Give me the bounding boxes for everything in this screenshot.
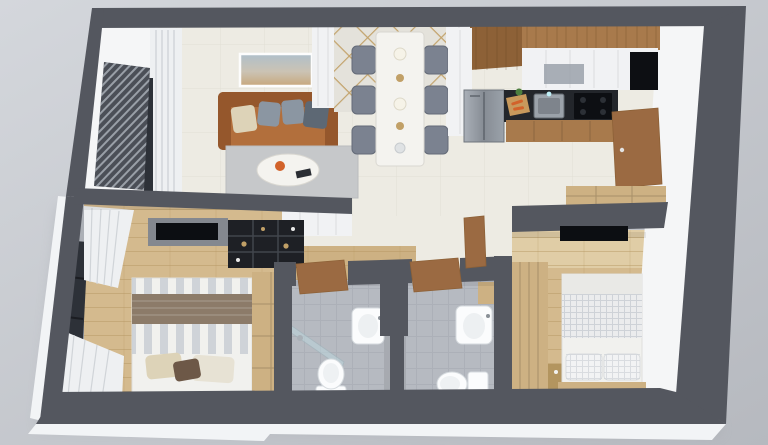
bedroom-2-door <box>464 216 486 268</box>
kitchen-sink <box>534 92 564 118</box>
bed-2 <box>558 274 646 398</box>
bed-2-top-fold <box>562 274 642 294</box>
cushion-gray-1 <box>257 101 281 127</box>
basin-1 <box>352 308 384 344</box>
bedroom-2-wardrobe <box>512 262 548 400</box>
bedroom-1-tv <box>156 223 218 240</box>
bedroom-2-tv-panel <box>560 226 628 241</box>
bed-1-runner <box>132 294 252 324</box>
table-flowers <box>275 161 285 171</box>
dining-chair <box>424 126 448 154</box>
dining-chair <box>424 46 448 74</box>
basin-2-faucet <box>486 314 490 318</box>
wall-bath-east <box>494 256 512 400</box>
wall-bath-west <box>274 262 292 400</box>
wall-bath-shaft <box>380 260 408 336</box>
floor-plan-canvas <box>0 0 768 445</box>
living-cabinet-column <box>312 24 334 108</box>
wall-art <box>240 54 312 86</box>
basin-2 <box>456 306 492 344</box>
dining-chair <box>352 46 376 74</box>
bathroom-2-door <box>410 258 462 292</box>
living-curtain-strip <box>150 28 182 196</box>
bed-2-blanket-waffle <box>562 294 642 338</box>
cushion-gray-2 <box>281 99 305 125</box>
faucet <box>547 92 552 97</box>
sofa-arm-left <box>218 92 231 150</box>
bedside-decor <box>554 370 558 374</box>
coffee-table <box>257 154 319 186</box>
dining-chair <box>352 126 376 154</box>
pillow-left-waffle <box>566 354 602 380</box>
entrance-door-handle <box>620 148 624 152</box>
shower-head <box>297 335 303 341</box>
dining-chair <box>352 86 376 114</box>
entrance-door <box>612 108 662 188</box>
cutting-board <box>506 94 530 116</box>
glass-cabinet <box>544 64 584 84</box>
wall-bath-divider <box>390 334 404 400</box>
bathroom-1-door <box>296 260 348 294</box>
wall-top <box>92 6 746 28</box>
dining-chair <box>424 86 448 114</box>
built-in-oven <box>630 52 658 90</box>
cushion-beige <box>230 104 257 133</box>
floor-plan-render <box>0 0 768 445</box>
cooktop <box>574 93 612 119</box>
wall-bottom <box>36 388 726 424</box>
pillow-right-waffle <box>604 354 640 380</box>
bed-1 <box>132 278 252 400</box>
herbs <box>516 89 523 96</box>
